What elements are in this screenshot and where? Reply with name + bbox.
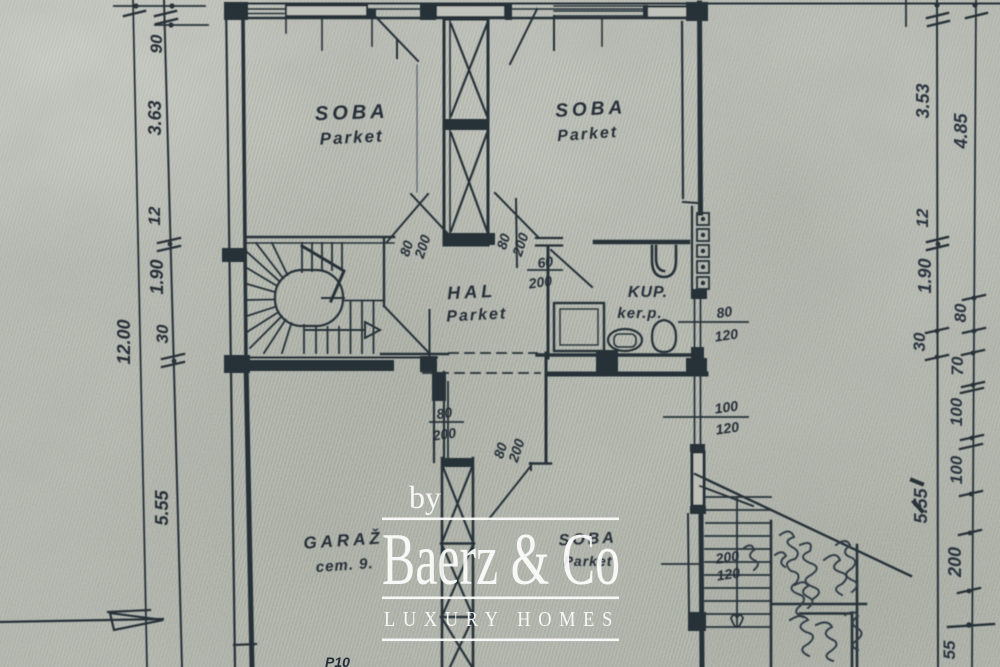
svg-text:80: 80 <box>715 303 733 321</box>
svg-text:200: 200 <box>945 547 965 578</box>
svg-text:60: 60 <box>536 253 554 271</box>
svg-text:3.63: 3.63 <box>145 100 165 135</box>
svg-text:80: 80 <box>435 404 453 422</box>
svg-text:ker.p.: ker.p. <box>617 305 662 322</box>
svg-text:90: 90 <box>147 34 166 53</box>
svg-text:70: 70 <box>948 356 967 375</box>
svg-text:Parket: Parket <box>446 305 508 325</box>
svg-text:12: 12 <box>145 206 164 225</box>
svg-text:200: 200 <box>431 424 458 443</box>
svg-text:5.55: 5.55 <box>911 488 931 524</box>
svg-text:5.55: 5.55 <box>152 490 172 526</box>
svg-text:200: 200 <box>527 272 554 291</box>
svg-text:SOBA: SOBA <box>555 97 627 122</box>
svg-text:SOBA: SOBA <box>315 101 390 126</box>
svg-text:KUP.: KUP. <box>628 284 668 301</box>
svg-text:HAL: HAL <box>447 281 497 304</box>
svg-text:120: 120 <box>714 325 740 344</box>
svg-text:100: 100 <box>947 455 966 484</box>
svg-text:12.00: 12.00 <box>114 319 134 364</box>
svg-text:by: by <box>409 479 441 515</box>
svg-text:55: 55 <box>940 640 959 659</box>
svg-text:Baerz & Co: Baerz & Co <box>382 519 620 601</box>
svg-text:120: 120 <box>716 564 742 583</box>
svg-text:12: 12 <box>913 208 932 227</box>
svg-text:30: 30 <box>910 332 929 351</box>
svg-text:80: 80 <box>951 303 970 322</box>
svg-text:100: 100 <box>714 397 740 416</box>
svg-text:4.85: 4.85 <box>951 113 971 150</box>
svg-text:100: 100 <box>947 397 966 426</box>
svg-text:Parket: Parket <box>319 126 384 148</box>
svg-text:1.90: 1.90 <box>147 259 167 294</box>
svg-text:P10: P10 <box>325 654 350 667</box>
svg-text:1.90: 1.90 <box>915 258 935 293</box>
svg-text:3.53: 3.53 <box>913 83 933 118</box>
svg-text:30: 30 <box>153 324 172 343</box>
svg-text:LUXURY HOMES: LUXURY HOMES <box>384 607 620 631</box>
svg-text:200: 200 <box>714 547 741 566</box>
svg-text:120: 120 <box>715 418 741 437</box>
